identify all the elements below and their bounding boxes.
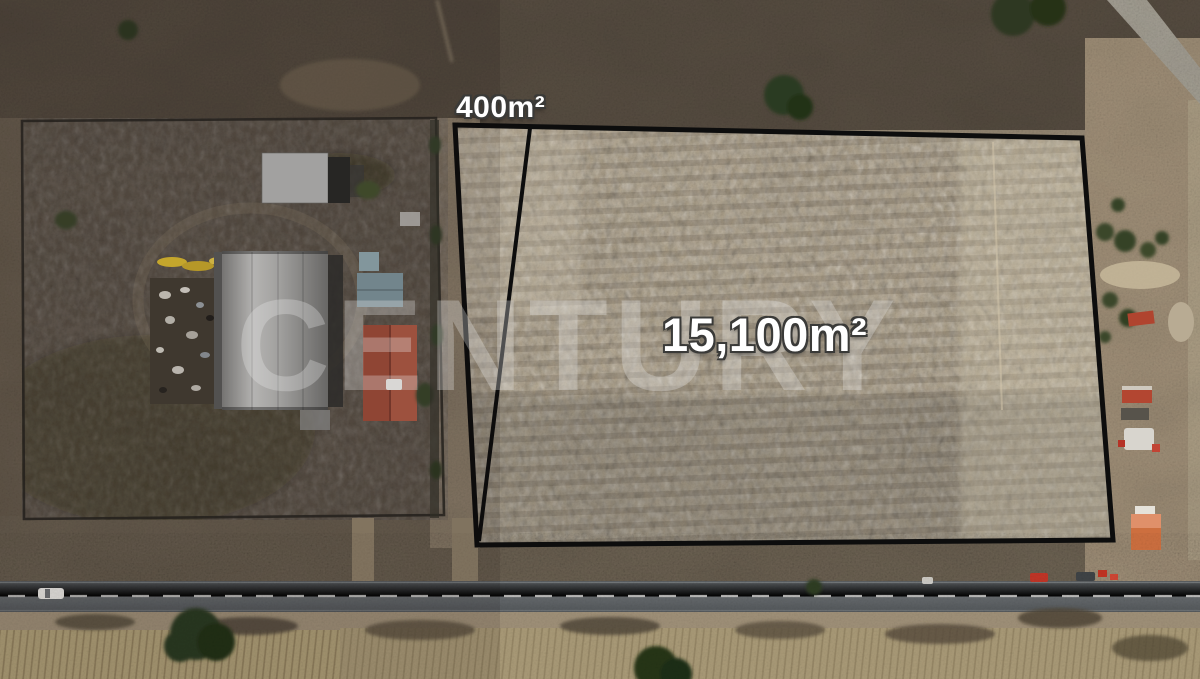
white-trailer	[1124, 428, 1154, 450]
aerial-photo-canvas	[0, 0, 1200, 679]
small-lot-area-label: 400m²	[456, 93, 545, 123]
red-roof-shack-2	[1122, 390, 1152, 403]
left-shade-overlay	[0, 0, 500, 679]
aerial-photo: CENTURY 400m² 15,100m²	[0, 0, 1200, 679]
large-lot-area-label: 15,100m²	[662, 311, 867, 358]
